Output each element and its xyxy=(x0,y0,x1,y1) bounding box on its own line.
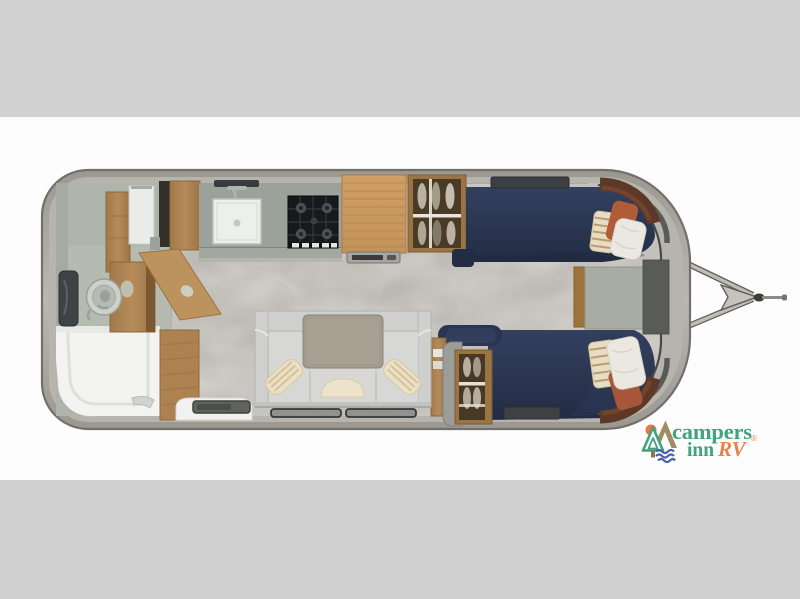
svg-text:RV: RV xyxy=(717,437,748,461)
svg-text:®: ® xyxy=(751,434,757,443)
svg-text:inn: inn xyxy=(687,440,714,461)
